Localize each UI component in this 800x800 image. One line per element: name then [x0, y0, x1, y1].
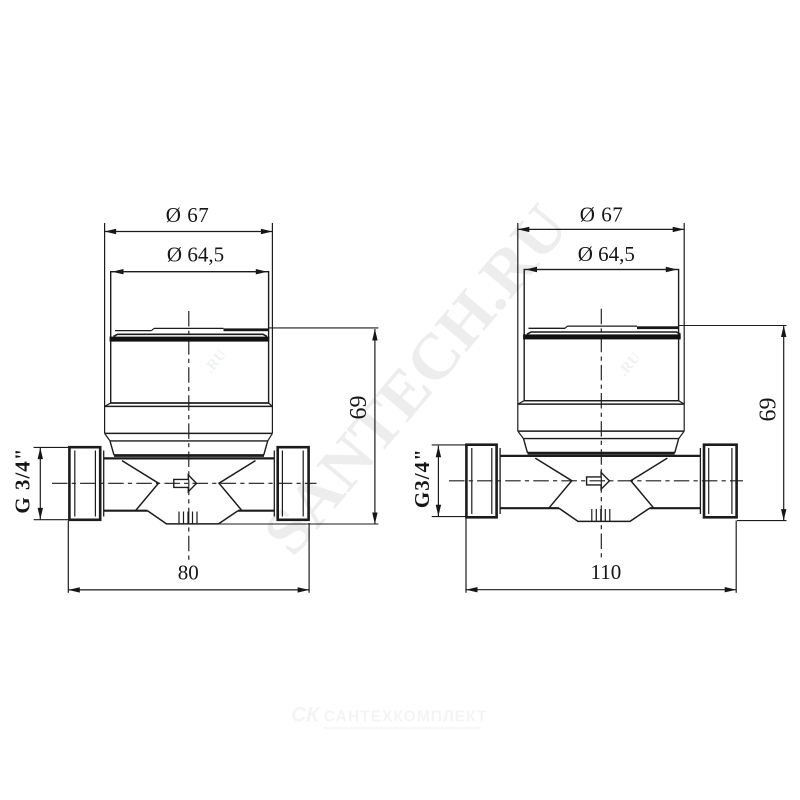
svg-text:САНТЕХКОМПЛЕКТ: САНТЕХКОМПЛЕКТ: [324, 709, 487, 726]
svg-text:Ø 67: Ø 67: [166, 203, 209, 227]
svg-text:Ø 67: Ø 67: [580, 203, 623, 227]
svg-text:G 3/4": G 3/4": [11, 448, 35, 514]
svg-text:Ø 64,5: Ø 64,5: [578, 242, 635, 266]
svg-text:110: 110: [591, 560, 622, 584]
svg-text:69: 69: [346, 396, 372, 420]
svg-text:80: 80: [178, 560, 199, 584]
svg-text:СК: СК: [291, 704, 321, 727]
svg-text:G3/4": G3/4": [410, 448, 434, 508]
svg-text:69: 69: [756, 398, 782, 422]
svg-text:Ø 64,5: Ø 64,5: [167, 242, 224, 266]
